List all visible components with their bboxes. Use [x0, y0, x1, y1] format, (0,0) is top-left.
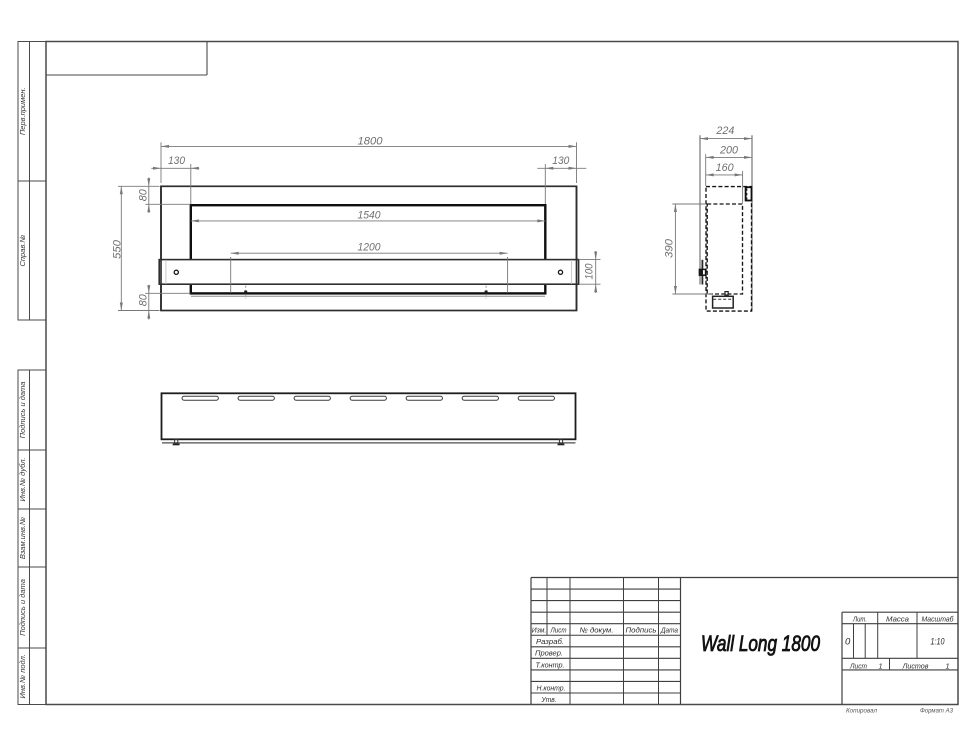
svg-text:Лит.: Лит.	[852, 614, 867, 623]
svg-text:Подпись и дата: Подпись и дата	[18, 382, 27, 439]
svg-text:Дата: Дата	[660, 626, 678, 635]
svg-text:160: 160	[716, 162, 734, 174]
svg-text:Формат A3: Формат A3	[920, 708, 953, 715]
svg-text:Инв.№ подл.: Инв.№ подл.	[18, 654, 27, 698]
svg-text:Разраб.: Разраб.	[536, 637, 564, 646]
svg-text:80: 80	[137, 294, 149, 306]
svg-text:Копировал: Копировал	[846, 708, 877, 715]
svg-text:Инв.№ дубл.: Инв.№ дубл.	[18, 457, 27, 501]
svg-text:Лист: Лист	[550, 626, 567, 635]
svg-text:0: 0	[845, 637, 851, 648]
svg-text:1540: 1540	[358, 209, 381, 221]
svg-text:1: 1	[878, 661, 882, 670]
svg-text:80: 80	[137, 189, 149, 201]
svg-text:Масштаб: Масштаб	[922, 614, 955, 623]
svg-text:Н.контр.: Н.контр.	[537, 683, 566, 692]
svg-text:550: 550	[112, 240, 124, 259]
svg-text:224: 224	[715, 125, 734, 137]
svg-text:Листов: Листов	[902, 661, 929, 670]
svg-text:Подпись: Подпись	[626, 626, 657, 635]
svg-text:1:10: 1:10	[931, 637, 946, 648]
svg-text:Перв.примен.: Перв.примен.	[18, 87, 27, 135]
svg-text:Справ.№: Справ.№	[18, 234, 27, 266]
svg-text:Т.контр.: Т.контр.	[536, 660, 565, 669]
svg-text:Лист: Лист	[849, 661, 867, 670]
svg-text:390: 390	[663, 239, 675, 258]
svg-text:100: 100	[584, 263, 596, 279]
svg-text:Провер.: Провер.	[535, 649, 563, 658]
svg-text:1200: 1200	[358, 242, 381, 254]
svg-text:Подпись и дата: Подпись и дата	[18, 579, 27, 636]
svg-text:200: 200	[719, 145, 738, 157]
svg-text:1: 1	[945, 661, 949, 670]
svg-text:130: 130	[168, 155, 185, 167]
svg-text:Масса: Масса	[886, 614, 909, 623]
svg-text:130: 130	[552, 155, 569, 167]
svg-text:1800: 1800	[358, 136, 383, 148]
svg-text:№ докум.: № докум.	[580, 626, 614, 635]
svg-text:Взам.инв.№: Взам.инв.№	[18, 517, 27, 559]
svg-text:Изм.: Изм.	[532, 626, 547, 635]
svg-text:Утв.: Утв.	[541, 695, 557, 704]
svg-text:Wall Long 1800: Wall Long 1800	[701, 631, 821, 656]
